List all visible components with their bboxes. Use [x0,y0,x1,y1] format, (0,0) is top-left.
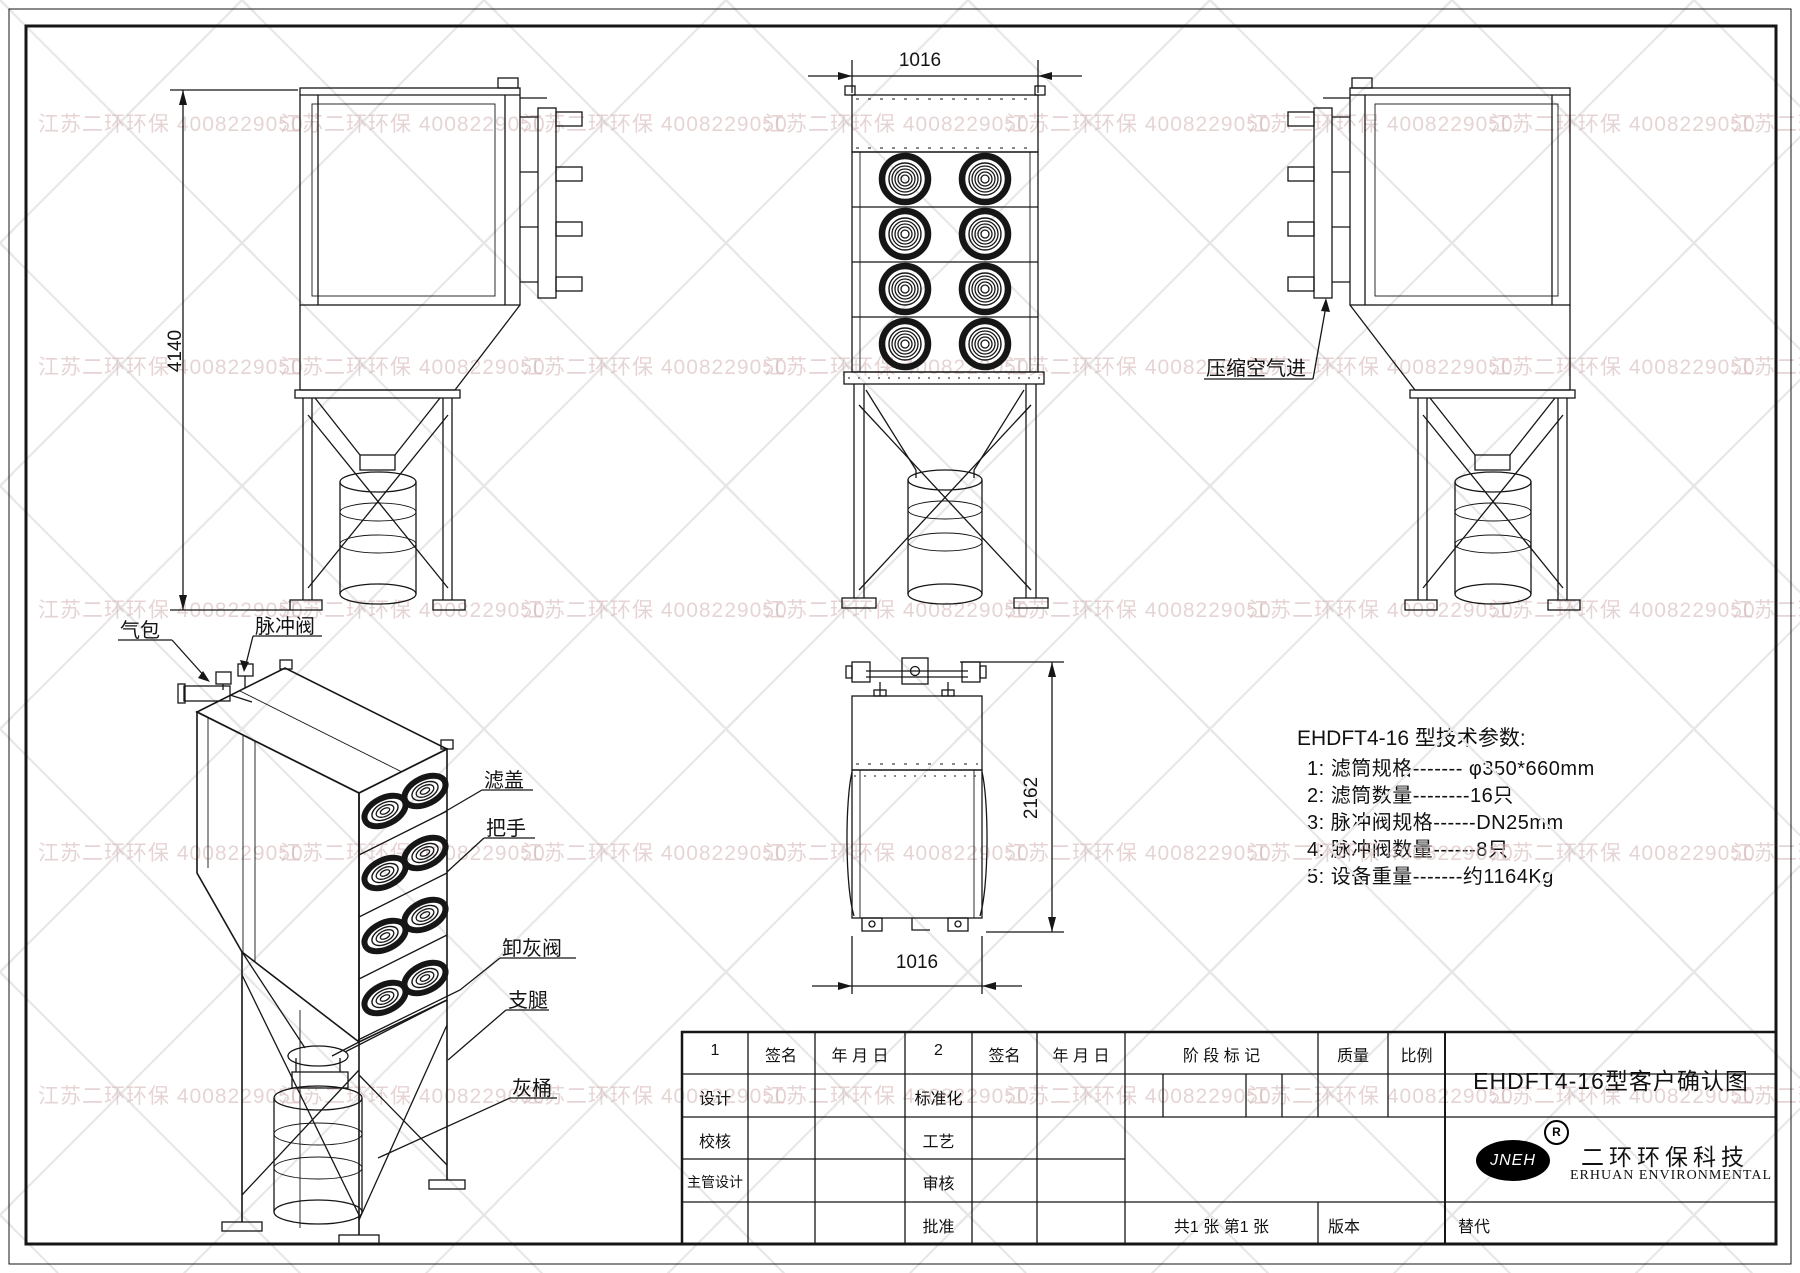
left-side-view [170,78,582,610]
tb-col1-header: 1 [690,1042,740,1060]
tb-review: 审核 [907,1170,970,1194]
label-handle: 把手 [486,812,526,841]
label-compressed-air-inlet: 压缩空气进 [1206,352,1306,381]
tb-col2-header: 2 [907,1042,970,1060]
tb-version: 版本 [1328,1213,1360,1237]
tb-substitute: 替代 [1458,1213,1490,1237]
tb-date1: 年 月 日 [817,1042,903,1066]
tb-date2: 年 月 日 [1039,1042,1123,1066]
label-ash-bucket: 灰桶 [512,1072,552,1101]
label-support-leg: 支腿 [508,984,548,1013]
label-air-bag: 气包 [120,614,160,643]
company-name-cn: 二环环保科技 [1570,1138,1760,1172]
drawing-sheet: 江苏二环环保 4008229050江苏二环环保 4008229050江苏二环环保… [0,0,1800,1273]
tb-stage-mark: 阶 段 标 记 [1127,1042,1316,1066]
tb-sign2: 签名 [974,1042,1035,1066]
tb-scale: 比例 [1390,1042,1443,1066]
tb-approve: 批准 [907,1213,970,1237]
label-pulse-valve: 脉冲阀 [255,610,315,639]
dim-overall-height: 4140 [165,311,187,391]
drawing-title: EHDFT4-16型客户确认图 [1455,1062,1767,1096]
registered-mark-icon: R [1544,1120,1569,1145]
company-logo: JNEH [1476,1140,1550,1181]
tb-process: 工艺 [907,1128,970,1152]
tb-quality: 质量 [1320,1042,1386,1066]
dim-top-width: 1016 [882,952,952,974]
dim-depth: 2162 [1021,758,1043,838]
front-view [808,60,1082,608]
tb-design: 设计 [690,1085,740,1109]
tb-check: 校核 [690,1128,740,1152]
tb-standardization: 标准化 [907,1085,970,1109]
label-filter-cover: 滤盖 [484,764,524,793]
tb-sheets: 共1 张 第1 张 [1127,1213,1316,1237]
company-name-en: ERHUAN ENVIRONMENTAL [1570,1168,1760,1184]
tb-sign1: 签名 [750,1042,812,1066]
dim-front-width: 1016 [885,50,955,72]
right-side-view [1204,78,1580,610]
label-ash-valve: 卸灰阀 [502,932,562,961]
tb-chief-design: 主管设计 [684,1172,746,1192]
